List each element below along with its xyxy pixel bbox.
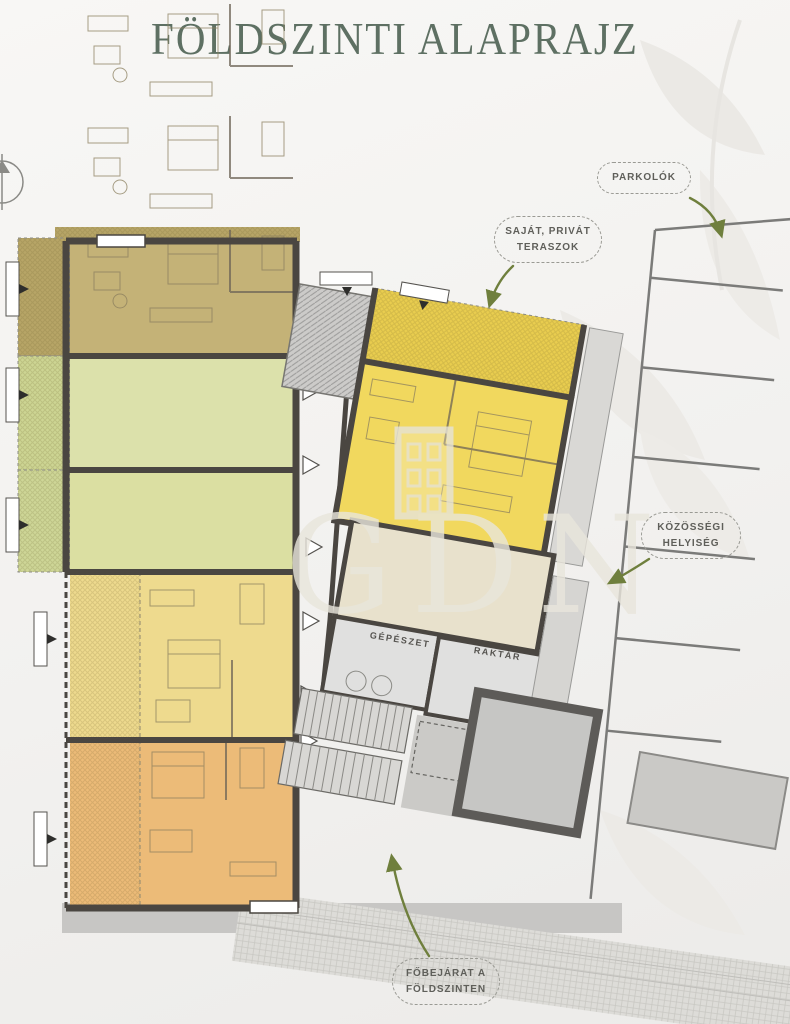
callout-main-entrance-line2: FÖLDSZINTEN (403, 982, 489, 998)
callout-parking-label: PARKOLÓK (608, 170, 680, 186)
callout-private-terraces-line1: SAJÁT, PRIVÁT (505, 224, 591, 240)
terrace-green-2 (18, 470, 70, 572)
callout-community-room: KÖZÖSSÉGI HELYISÉG (641, 512, 741, 559)
watermark-text: GDN (285, 487, 673, 644)
unit-green (70, 356, 293, 470)
parking-arrow (690, 198, 721, 234)
callout-community-room-line1: KÖZÖSSÉGI (652, 520, 730, 536)
unit-tan (70, 244, 293, 356)
terrace-green (18, 356, 70, 470)
unit-green-2 (70, 470, 293, 572)
floorplan-page: FÖLDSZINTI ALAPRAJZ (0, 0, 790, 1024)
core-square (457, 692, 598, 833)
callout-private-terraces: SAJÁT, PRIVÁT TERASZOK (494, 216, 602, 263)
callout-parking: PARKOLÓK (597, 162, 691, 194)
terraces-arrow (490, 266, 513, 304)
callout-community-room-line2: HELYISÉG (652, 536, 730, 552)
callout-private-terraces-line2: TERASZOK (505, 240, 591, 256)
callout-main-entrance: FŐBEJÁRAT A FÖLDSZINTEN (392, 958, 500, 1005)
north-symbol (0, 154, 23, 210)
callout-main-entrance-line1: FŐBEJÁRAT A (403, 966, 489, 982)
terrace-tan (18, 238, 70, 356)
left-wing-units (18, 4, 300, 913)
